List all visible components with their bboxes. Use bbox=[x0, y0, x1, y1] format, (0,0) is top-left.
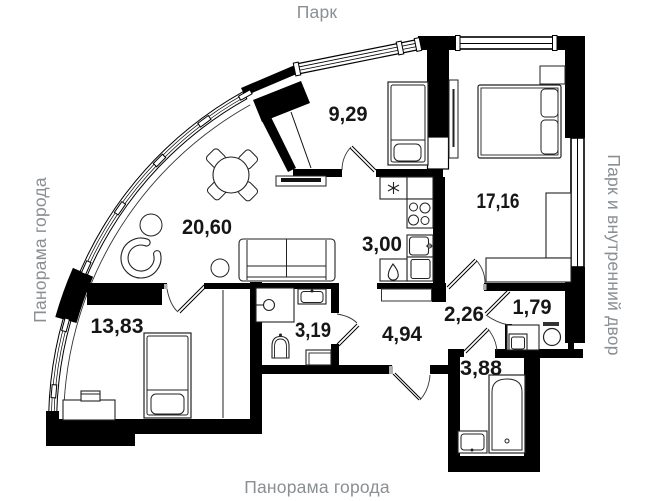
svg-text:9,29: 9,29 bbox=[329, 102, 368, 126]
svg-text:Парк и внутренний двор: Парк и внутренний двор bbox=[604, 154, 624, 355]
svg-text:Панорама города: Панорама города bbox=[244, 477, 390, 497]
svg-text:2,26: 2,26 bbox=[444, 302, 484, 326]
svg-text:17,16: 17,16 bbox=[477, 189, 520, 213]
svg-text:Панорама города: Панорама города bbox=[30, 177, 50, 323]
svg-text:4,94: 4,94 bbox=[382, 322, 422, 346]
svg-text:3,00: 3,00 bbox=[362, 232, 402, 256]
svg-text:20,60: 20,60 bbox=[182, 215, 232, 239]
svg-text:3,19: 3,19 bbox=[295, 318, 331, 342]
svg-text:1,79: 1,79 bbox=[513, 295, 552, 319]
svg-text:Парк: Парк bbox=[297, 2, 338, 22]
svg-text:13,83: 13,83 bbox=[91, 314, 144, 338]
